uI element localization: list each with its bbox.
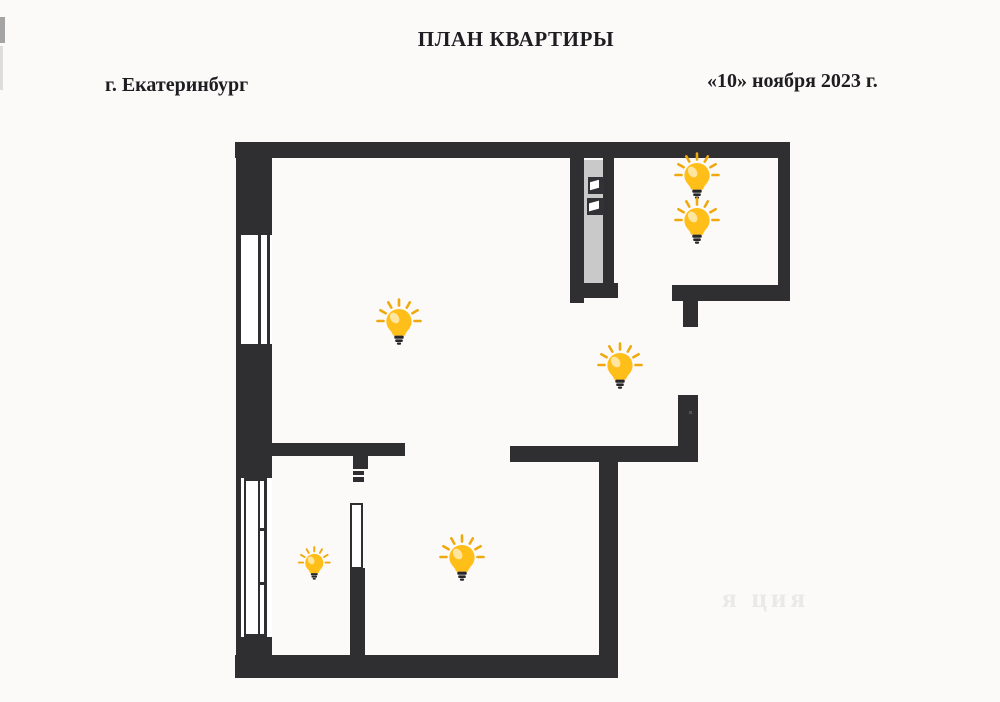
shaft-panel-2-mark xyxy=(589,201,599,212)
kitchen-bottom-wall xyxy=(672,285,790,301)
living-room-south-wall xyxy=(272,443,405,456)
page-title: ПЛАН КВАРТИРЫ xyxy=(418,27,614,52)
window-crossbar xyxy=(258,582,267,585)
hallway-light-bulb-icon xyxy=(596,342,644,398)
bottom-wall xyxy=(235,655,618,678)
closet-door-stub xyxy=(353,456,368,469)
left-wall-middle xyxy=(241,344,272,478)
scan-mark-1 xyxy=(0,17,5,43)
living-room-window xyxy=(241,235,272,344)
floor-plan-page: ПЛАН КВАРТИРЫ г. Екатеринбург «10» ноябр… xyxy=(0,0,1000,702)
closet-light-bulb-icon xyxy=(297,546,332,586)
scan-speck xyxy=(689,411,692,414)
right-wall xyxy=(778,142,790,301)
window-frame-line xyxy=(258,478,260,637)
shaft-west-wall xyxy=(570,158,584,303)
shaft-south-wall xyxy=(570,283,618,298)
shaft-east-wall xyxy=(603,158,614,295)
left-wall-upper xyxy=(236,142,272,235)
window-frame-line xyxy=(258,235,261,344)
closet-door-jamb-b xyxy=(353,477,364,482)
city-label: г. Екатеринбург xyxy=(105,74,248,97)
shaft-panel-1-mark xyxy=(590,180,599,191)
bedroom-light-bulb-icon xyxy=(438,534,486,590)
bedroom-right-wall xyxy=(599,462,618,678)
watermark-text: я ция xyxy=(722,583,809,614)
window-crossbar xyxy=(244,634,267,637)
shaft-panel-1 xyxy=(588,177,604,194)
closet-door-leaf xyxy=(350,503,363,569)
shaft-panel-2 xyxy=(587,198,604,215)
scan-mark-2 xyxy=(0,46,3,90)
window-crossbar xyxy=(244,478,267,481)
window-frame-line xyxy=(244,478,246,637)
living-room-light-bulb-icon xyxy=(375,298,423,354)
balcony-window xyxy=(241,478,272,637)
window-crossbar xyxy=(258,528,267,531)
window-frame-line xyxy=(267,235,270,344)
hallway-bottom-wall xyxy=(510,446,698,462)
closet-door-jamb-a xyxy=(353,471,364,475)
left-wall-lower xyxy=(241,637,272,678)
kitchen-light-2-bulb-icon xyxy=(673,197,721,253)
closet-east-wall xyxy=(350,568,365,655)
date-label: «10» ноября 2023 г. xyxy=(707,70,878,93)
window-frame-line xyxy=(264,478,267,637)
kitchen-door-stub xyxy=(683,301,698,327)
